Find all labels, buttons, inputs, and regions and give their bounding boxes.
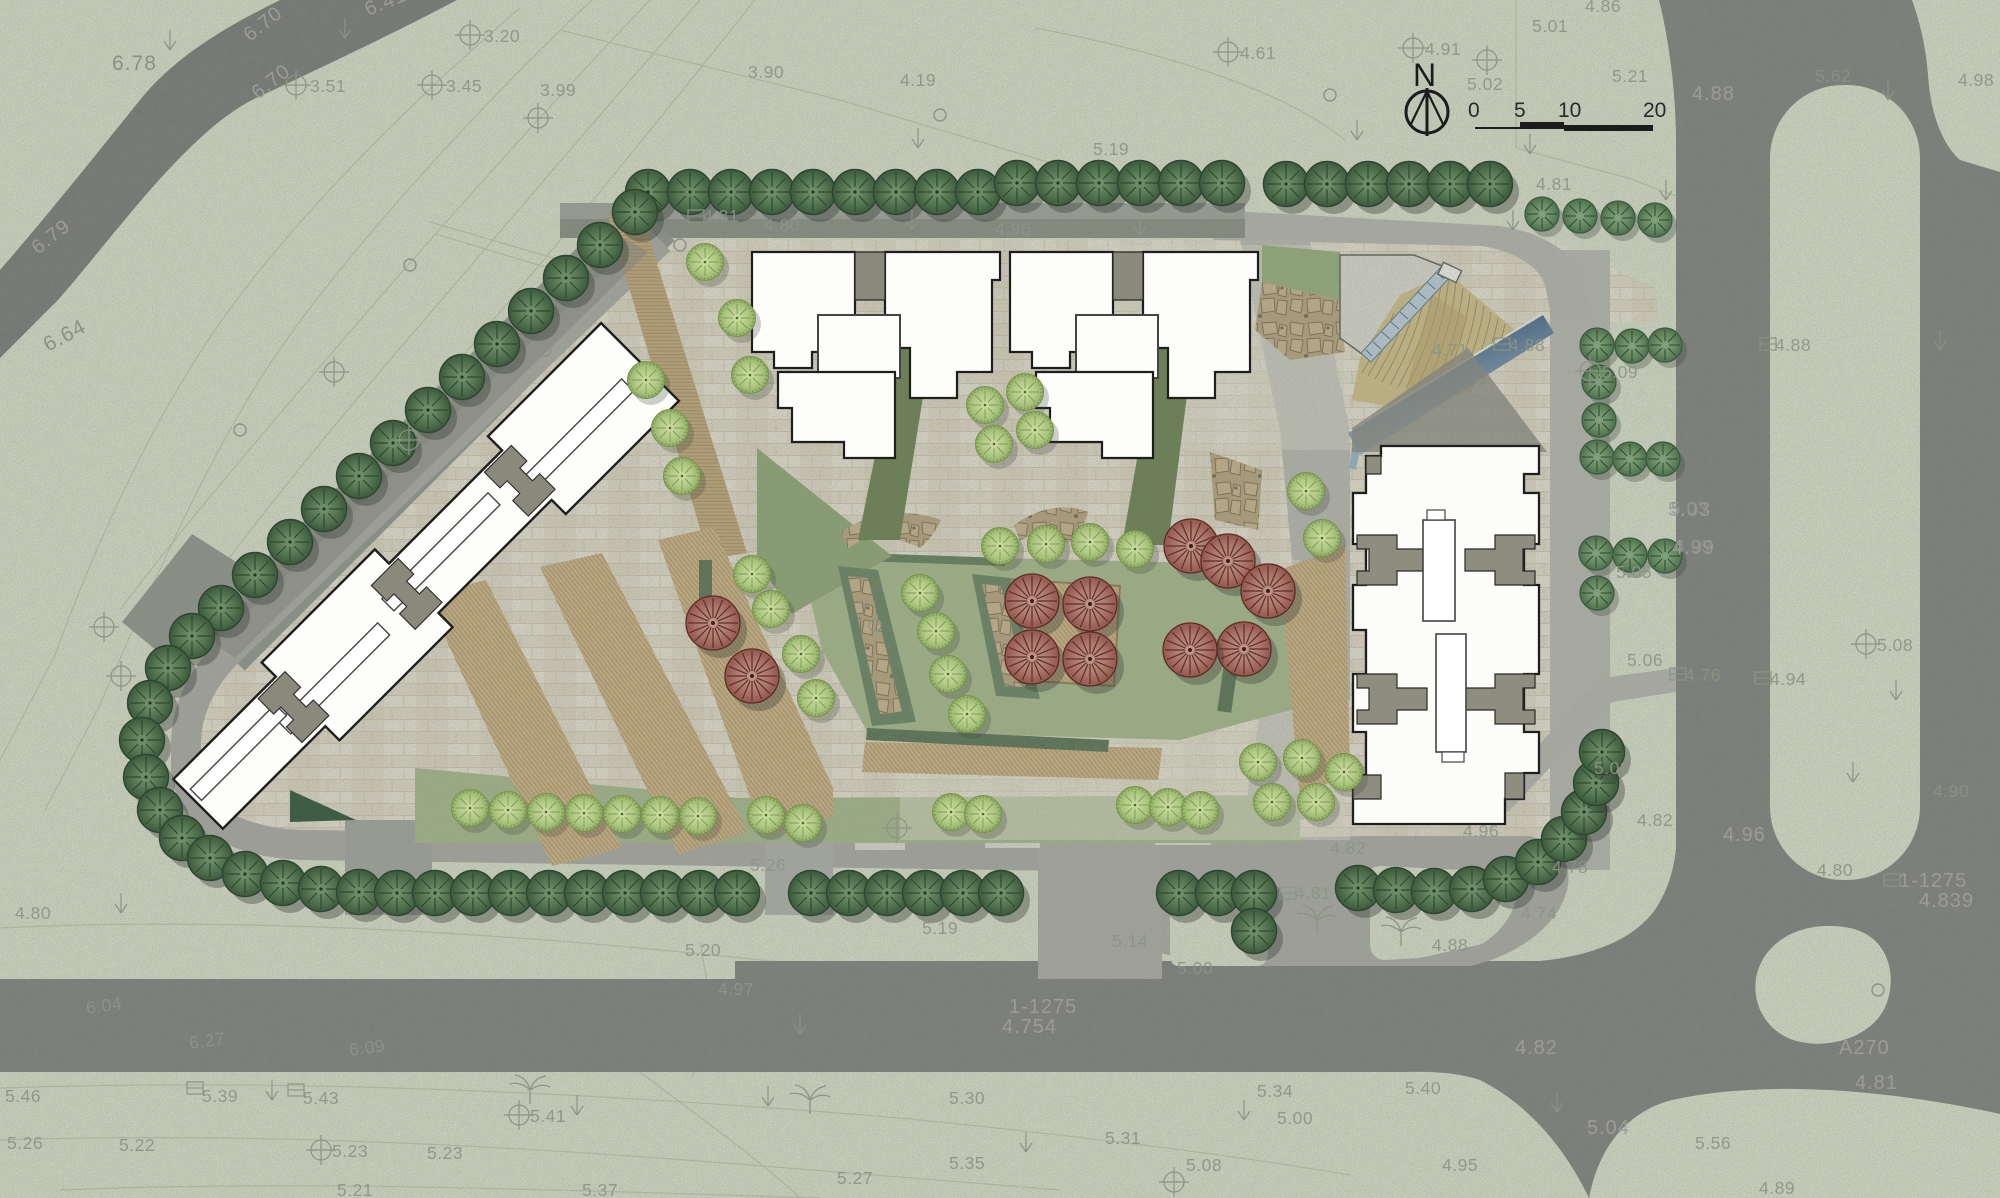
svg-text:5.19: 5.19 xyxy=(922,918,958,938)
svg-text:N: N xyxy=(1413,57,1436,93)
svg-text:5.00: 5.00 xyxy=(1277,1108,1313,1128)
svg-text:4.96: 4.96 xyxy=(995,219,1031,239)
svg-text:4.81: 4.81 xyxy=(1536,174,1572,194)
svg-text:5.31: 5.31 xyxy=(1105,1128,1141,1148)
svg-text:5.30: 5.30 xyxy=(949,1088,985,1108)
svg-text:5.21: 5.21 xyxy=(1612,66,1648,86)
svg-text:5.40: 5.40 xyxy=(1405,1078,1441,1098)
svg-text:5.08: 5.08 xyxy=(1186,1155,1222,1175)
svg-text:5.05: 5.05 xyxy=(1616,562,1652,582)
svg-text:5.08: 5.08 xyxy=(1594,758,1630,778)
svg-text:3.20: 3.20 xyxy=(484,26,520,46)
svg-text:3.90: 3.90 xyxy=(748,62,784,82)
svg-text:4.86: 4.86 xyxy=(1585,0,1621,16)
svg-text:4.91: 4.91 xyxy=(1425,39,1461,59)
svg-text:4.98: 4.98 xyxy=(1958,70,1994,90)
svg-text:4.95: 4.95 xyxy=(1442,1155,1478,1175)
svg-text:5.35: 5.35 xyxy=(949,1153,985,1173)
svg-text:4.97: 4.97 xyxy=(718,979,754,999)
svg-text:4.80: 4.80 xyxy=(1817,860,1853,880)
svg-text:5.23: 5.23 xyxy=(332,1141,368,1161)
svg-text:4.88: 4.88 xyxy=(1509,335,1545,355)
svg-text:5.34: 5.34 xyxy=(1257,1081,1293,1101)
svg-text:5.46: 5.46 xyxy=(5,1086,41,1106)
svg-text:4.81: 4.81 xyxy=(1295,883,1331,903)
svg-text:5.06: 5.06 xyxy=(1627,650,1663,670)
svg-text:4.81: 4.81 xyxy=(703,206,739,226)
svg-text:5.41: 5.41 xyxy=(530,1106,566,1126)
svg-text:4.88: 4.88 xyxy=(1692,83,1735,105)
svg-text:5.37: 5.37 xyxy=(582,1180,618,1198)
svg-text:5: 5 xyxy=(1514,99,1526,122)
svg-text:5.00: 5.00 xyxy=(1177,958,1213,978)
svg-text:6.78: 6.78 xyxy=(112,52,157,75)
svg-text:5.04: 5.04 xyxy=(1587,1117,1630,1139)
svg-text:5.20: 5.20 xyxy=(685,940,721,960)
svg-text:5.39: 5.39 xyxy=(202,1086,238,1106)
svg-text:5.62: 5.62 xyxy=(1815,66,1851,86)
svg-text:4.90: 4.90 xyxy=(1933,781,1969,801)
svg-text:1-1275: 1-1275 xyxy=(1009,996,1077,1018)
svg-text:4.71: 4.71 xyxy=(1432,340,1468,360)
svg-text:5.56: 5.56 xyxy=(1695,1133,1731,1153)
svg-text:4.94: 4.94 xyxy=(1770,669,1806,689)
svg-text:4.82: 4.82 xyxy=(1637,810,1673,830)
svg-text:10: 10 xyxy=(1558,99,1581,122)
svg-text:4.19: 4.19 xyxy=(900,70,936,90)
svg-text:4.96: 4.96 xyxy=(1723,824,1766,846)
svg-text:4.82: 4.82 xyxy=(1515,1037,1558,1059)
svg-text:4.88: 4.88 xyxy=(1775,335,1811,355)
svg-text:5.03: 5.03 xyxy=(1671,498,1707,518)
svg-text:4.96: 4.96 xyxy=(1463,821,1499,841)
svg-text:4.80: 4.80 xyxy=(764,215,800,235)
svg-text:5.09: 5.09 xyxy=(1602,362,1638,382)
svg-text:3.51: 3.51 xyxy=(310,76,346,96)
svg-text:4.74: 4.74 xyxy=(1521,903,1557,923)
svg-text:5.14: 5.14 xyxy=(1112,931,1148,951)
svg-text:5.01: 5.01 xyxy=(1532,16,1568,36)
svg-text:4.76: 4.76 xyxy=(1685,665,1721,685)
svg-text:4.80: 4.80 xyxy=(15,903,51,923)
svg-text:20: 20 xyxy=(1643,99,1666,122)
svg-text:4.89: 4.89 xyxy=(1759,1178,1795,1198)
svg-text:5.21: 5.21 xyxy=(337,1180,373,1198)
svg-text:5.27: 5.27 xyxy=(837,1168,873,1188)
svg-text:5.23: 5.23 xyxy=(427,1143,463,1163)
svg-text:0: 0 xyxy=(1468,99,1480,122)
svg-text:4.82: 4.82 xyxy=(1330,838,1366,858)
svg-text:1-1275: 1-1275 xyxy=(1899,870,1967,892)
svg-text:A270: A270 xyxy=(1839,1037,1890,1059)
svg-text:4.88: 4.88 xyxy=(1432,935,1468,955)
svg-text:5.19: 5.19 xyxy=(1093,139,1129,159)
svg-text:4.99: 4.99 xyxy=(1675,536,1711,556)
svg-text:3.45: 3.45 xyxy=(446,76,482,96)
svg-text:5.22: 5.22 xyxy=(119,1135,155,1155)
svg-text:4.754: 4.754 xyxy=(1002,1016,1057,1038)
svg-text:4.61: 4.61 xyxy=(1240,43,1276,63)
svg-text:3.99: 3.99 xyxy=(540,80,576,100)
svg-text:5.08: 5.08 xyxy=(1877,635,1913,655)
svg-text:5.02: 5.02 xyxy=(1467,74,1503,94)
svg-text:5.26: 5.26 xyxy=(7,1133,43,1153)
svg-text:5.43: 5.43 xyxy=(303,1088,339,1108)
svg-text:5.26: 5.26 xyxy=(750,855,786,875)
svg-text:4.81: 4.81 xyxy=(1855,1072,1898,1094)
svg-text:4.78: 4.78 xyxy=(1552,857,1588,877)
svg-text:4.839: 4.839 xyxy=(1919,890,1974,912)
